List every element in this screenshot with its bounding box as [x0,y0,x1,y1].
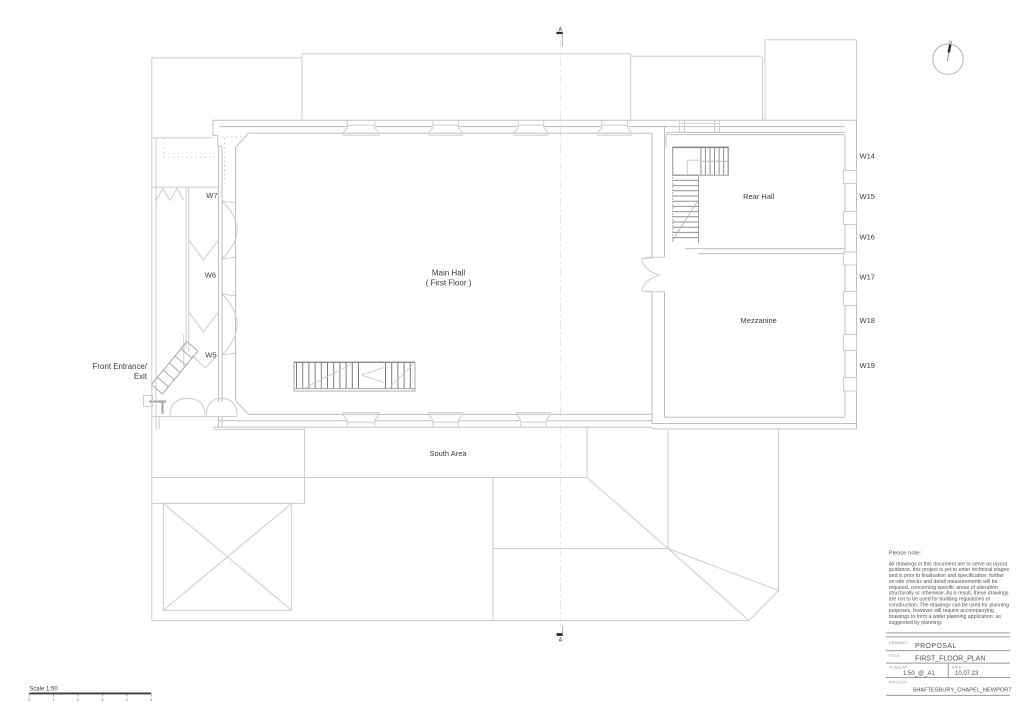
svg-text:W15: W15 [860,192,875,201]
svg-text:( First Floor ): ( First Floor ) [426,278,472,287]
svg-text:W7: W7 [206,191,217,200]
svg-text:TITLE:: TITLE: [889,653,901,658]
svg-text:10.07.23: 10.07.23 [955,671,979,677]
svg-text:2: 2 [77,698,79,702]
svg-text:Rear Hall: Rear Hall [743,192,775,201]
svg-text:W5: W5 [205,350,216,359]
svg-text:W6: W6 [205,270,216,279]
svg-text:FIRST_FLOOR_PLAN: FIRST_FLOOR_PLAN [915,655,985,662]
svg-text:suggested by planning.: suggested by planning. [889,620,942,626]
svg-text:0: 0 [28,698,30,702]
svg-text:Scale 1:50: Scale 1:50 [29,687,58,693]
svg-text:W17: W17 [860,273,875,282]
svg-text:PROPOSAL: PROPOSAL [915,643,957,650]
svg-text:PROJECT:: PROJECT: [889,680,908,685]
svg-text:SHAFTESBURY_CHAPEL_NEWPORT: SHAFTESBURY_CHAPEL_NEWPORT [913,687,1013,693]
svg-text:DATE:: DATE: [952,665,963,670]
svg-text:Exit: Exit [134,372,148,381]
svg-text:W18: W18 [860,316,875,325]
svg-text:W19: W19 [860,361,875,370]
svg-text:3: 3 [101,698,103,702]
svg-text:W16: W16 [860,233,875,242]
svg-text:DRAWING:: DRAWING: [889,640,909,645]
svg-text:N: N [949,39,952,44]
svg-text:SCALE AT:: SCALE AT: [889,665,908,670]
svg-text:Main Hall: Main Hall [432,268,466,277]
svg-text:Mezzanine: Mezzanine [741,316,777,325]
svg-text:4: 4 [126,698,128,702]
svg-text:W14: W14 [860,151,875,160]
svg-text:Front Entrance/: Front Entrance/ [93,362,148,371]
svg-text:Please note:: Please note: [889,550,922,556]
svg-text:5: 5 [150,698,152,702]
svg-text:South Area: South Area [429,449,467,458]
svg-text:1:50_@_A1: 1:50_@_A1 [903,671,935,677]
svg-text:1: 1 [53,698,55,702]
